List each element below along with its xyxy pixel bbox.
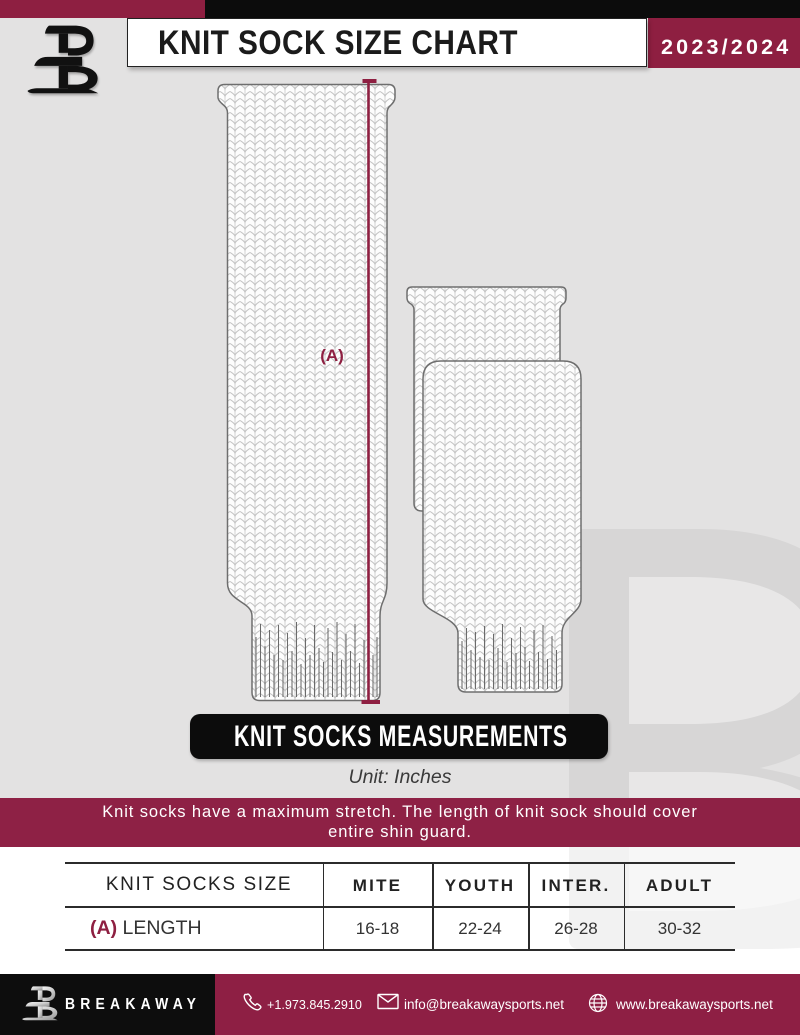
svg-text:(A): (A) (320, 346, 344, 365)
